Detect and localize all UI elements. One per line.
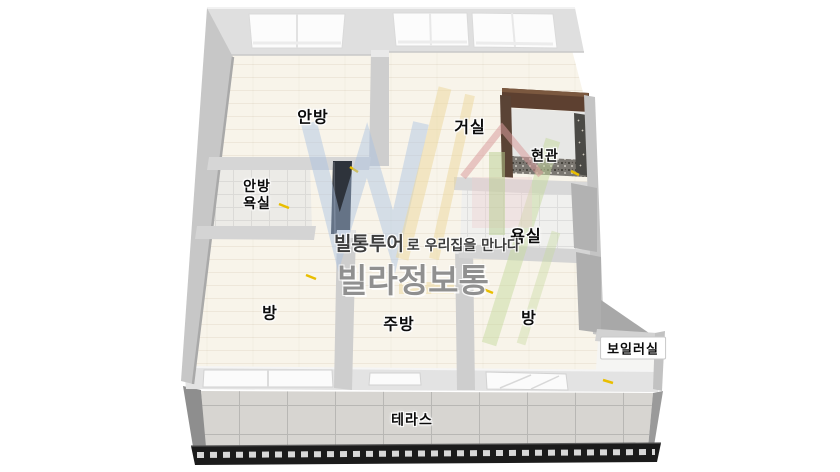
room-label-bang-left: 방 — [262, 303, 278, 322]
room-label-bang-right: 방 — [521, 308, 537, 327]
room-label-anbang: 안방 — [297, 107, 328, 126]
room-label-geosil: 거실 — [454, 117, 485, 136]
watermark-tagline-brand: 빌통투어 — [334, 229, 404, 256]
watermark-tagline-rest: 로 우리집을 만나다 — [407, 235, 520, 255]
windows — [249, 13, 557, 48]
watermark-tagline: 빌통투어 로 우리집을 만나다 — [334, 229, 520, 256]
room-label-boiler: 보일러실 — [600, 337, 666, 360]
room-label-anbang-yoksil-line1: 안방 — [243, 179, 271, 196]
room-label-hyeongwan: 현관 — [531, 149, 559, 166]
terrace-railing — [191, 443, 661, 465]
room-label-anbang-yoksil-line2: 욕실 — [243, 196, 271, 213]
watermark-brand-name: 빌라정보통 — [337, 254, 489, 302]
room-label-anbang-yoksil: 안방 욕실 — [243, 179, 271, 213]
room-label-jubang: 주방 — [383, 314, 414, 333]
floorplan-screenshot: 안방 거실 현관 안방 욕실 욕실 방 주방 방 보일러실 테라스 빌통투어 로… — [0, 0, 840, 472]
room-label-terrace: 테라스 — [391, 413, 433, 430]
